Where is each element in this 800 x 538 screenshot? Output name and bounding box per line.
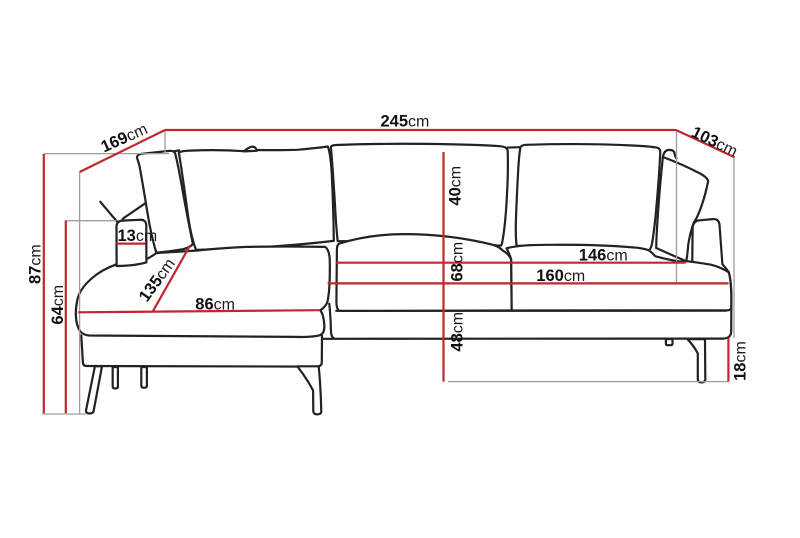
svg-text:146cm: 146cm	[579, 246, 628, 264]
svg-text:18cm: 18cm	[731, 341, 749, 381]
svg-text:86cm: 86cm	[195, 296, 235, 314]
svg-text:87cm: 87cm	[27, 244, 45, 284]
svg-text:68cm: 68cm	[448, 242, 466, 282]
svg-text:64cm: 64cm	[49, 285, 67, 325]
svg-text:245cm: 245cm	[381, 113, 430, 131]
svg-text:48cm: 48cm	[449, 312, 467, 352]
svg-text:13cm: 13cm	[118, 227, 158, 245]
svg-text:40cm: 40cm	[446, 166, 464, 206]
svg-text:160cm: 160cm	[536, 267, 585, 285]
